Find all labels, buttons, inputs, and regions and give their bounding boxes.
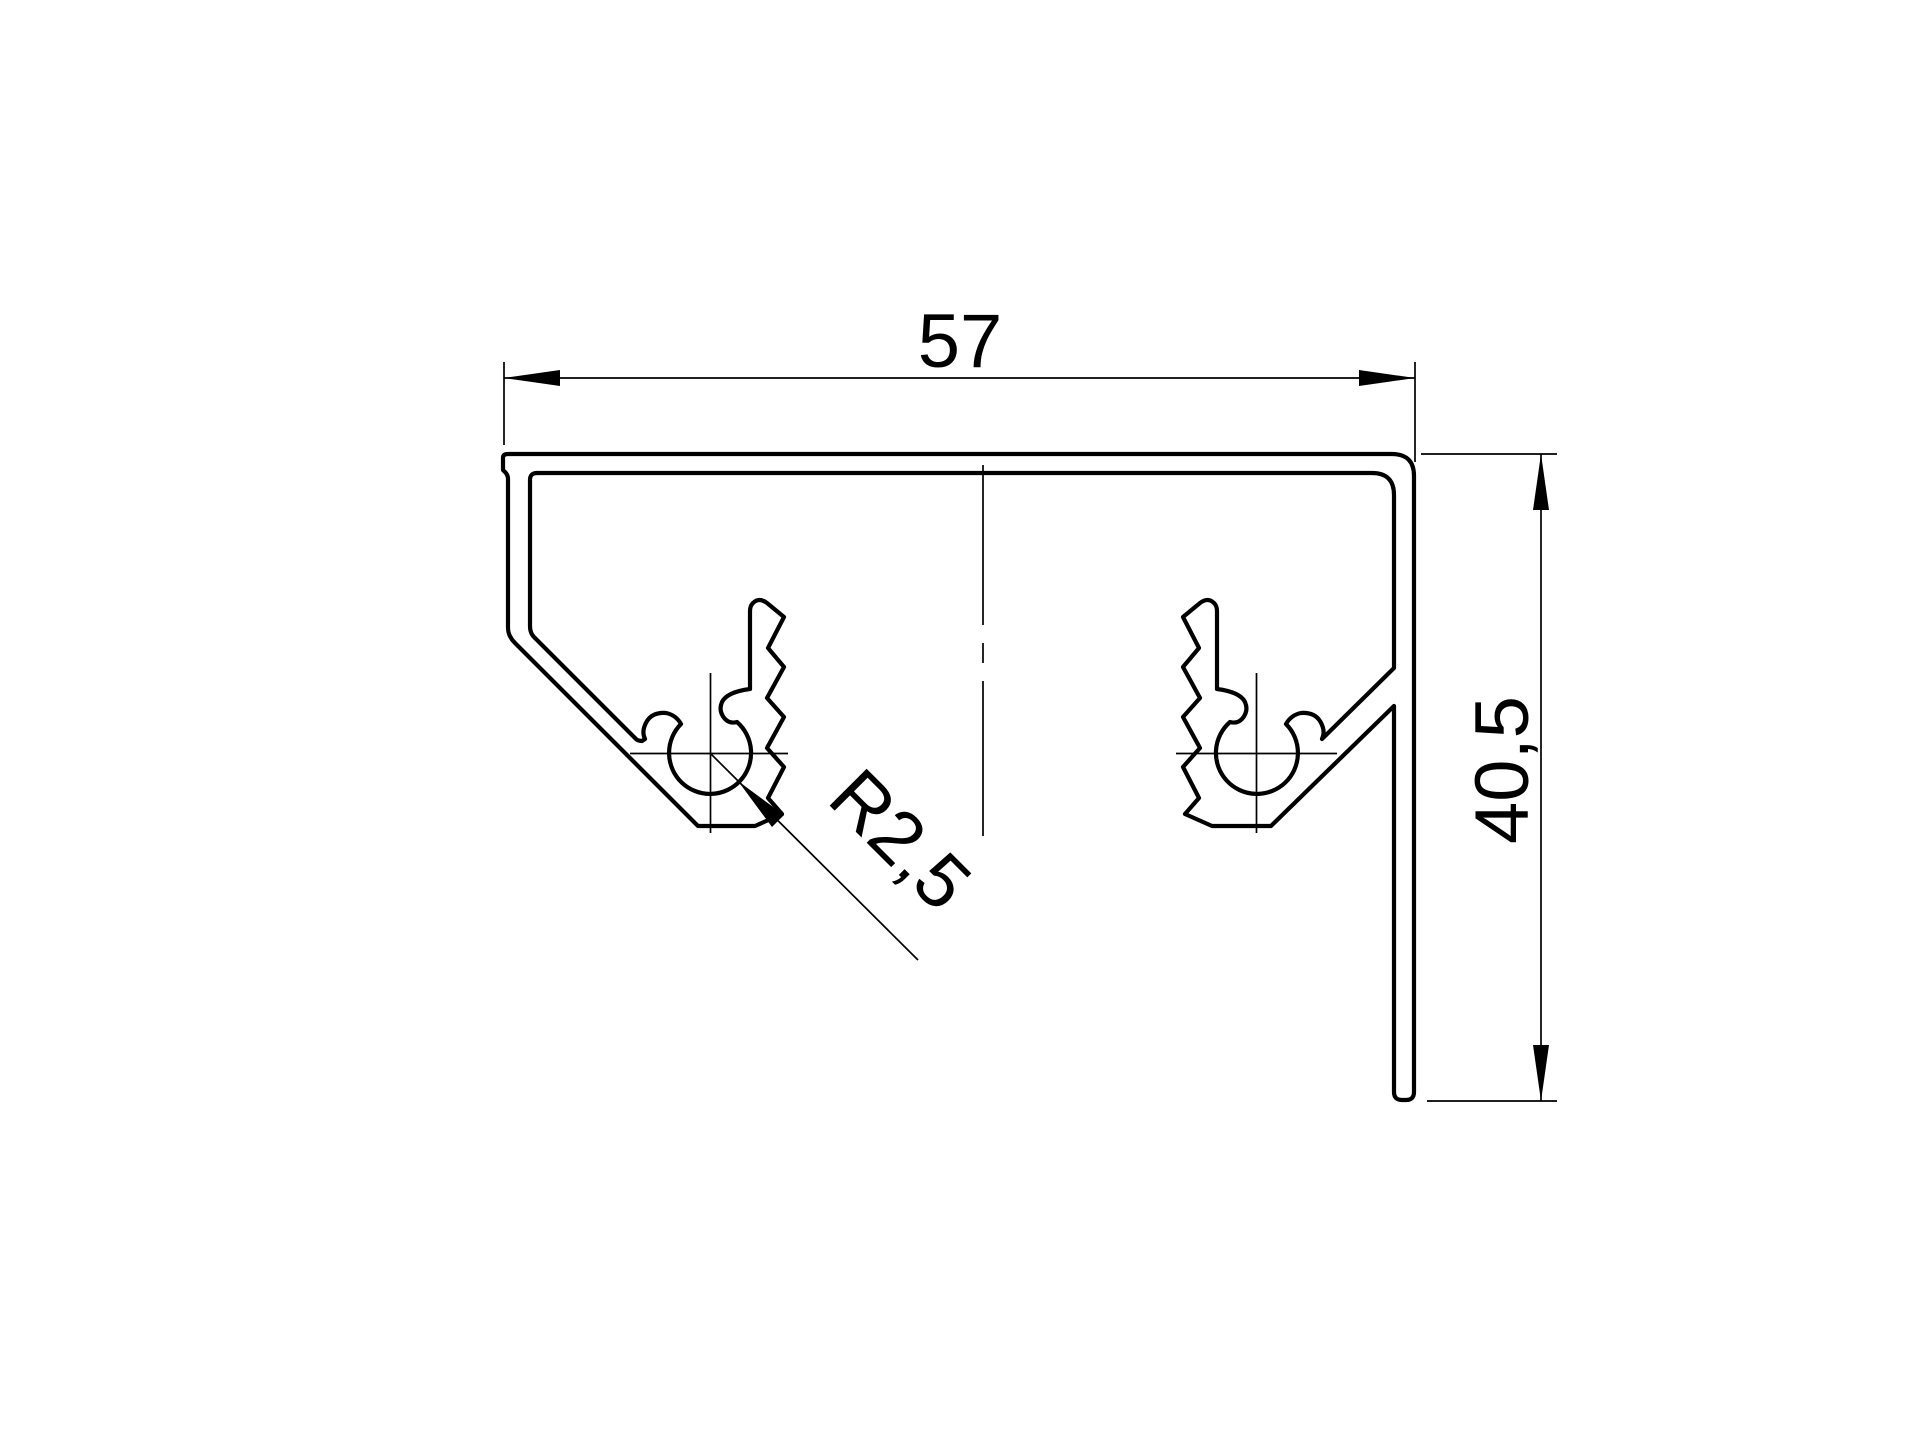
dimension-height: 40,5 bbox=[1421, 454, 1557, 1101]
leader-arrowhead bbox=[738, 781, 784, 827]
drawing-page: 57 40,5 R2,5 bbox=[0, 0, 1919, 1440]
arrowhead-top bbox=[1533, 454, 1549, 510]
arrowhead-right bbox=[1359, 370, 1415, 386]
dimension-text-height: 40,5 bbox=[1460, 696, 1545, 844]
radius-text: R2,5 bbox=[813, 753, 987, 927]
profile-outline bbox=[503, 454, 1414, 1100]
dimension-width: 57 bbox=[504, 299, 1415, 462]
dimension-text-width: 57 bbox=[918, 299, 1003, 384]
arrowhead-bottom bbox=[1533, 1045, 1549, 1101]
radius-callout: R2,5 bbox=[710, 753, 987, 960]
technical-drawing-canvas: 57 40,5 R2,5 bbox=[0, 0, 1919, 1440]
arrowhead-left bbox=[504, 370, 560, 386]
